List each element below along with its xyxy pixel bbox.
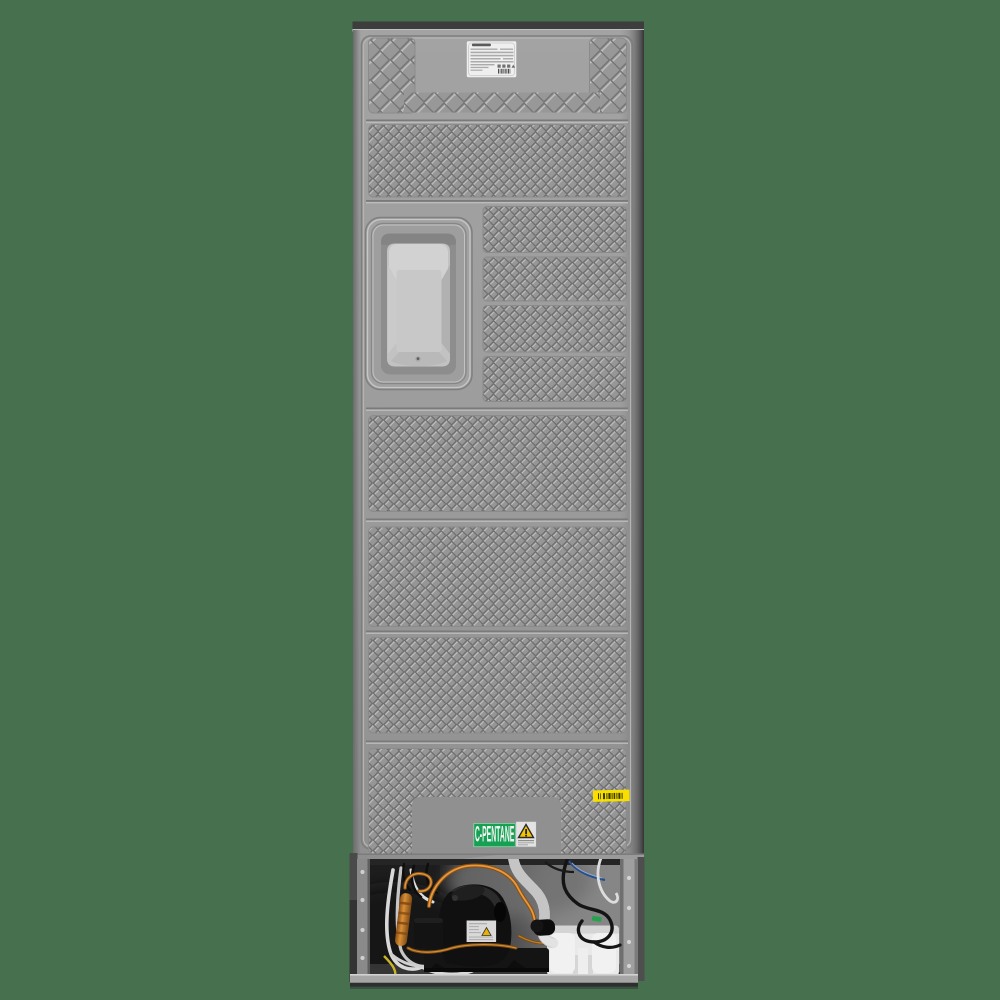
svg-text:C-PENTANE: C-PENTANE: [475, 822, 515, 847]
